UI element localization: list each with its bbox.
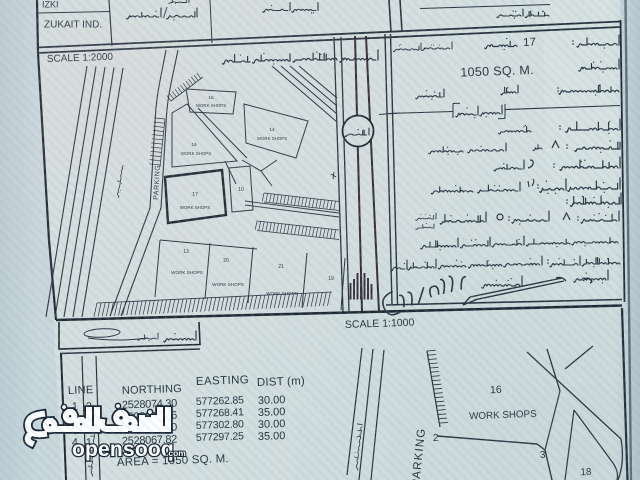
svg-text:35.00: 35.00 [258,430,286,443]
svg-text:17: 17 [192,192,198,198]
svg-text:WORK SHOPS: WORK SHOPS [196,103,226,108]
svg-text:15: 15 [208,95,214,101]
svg-text:SCALE 1:1000: SCALE 1:1000 [345,317,415,331]
svg-text:14: 14 [269,127,275,133]
svg-text:WORK SHOPS: WORK SHOPS [257,136,287,141]
svg-text:WORK SHOPS: WORK SHOPS [212,282,244,287]
svg-text:SCALE 1:2000: SCALE 1:2000 [47,52,114,65]
svg-text:16: 16 [490,384,502,396]
svg-text:18: 18 [580,467,592,478]
svg-text:19: 19 [328,276,334,282]
svg-text:opensooq: opensooq [72,438,174,461]
svg-text:20: 20 [223,258,229,264]
svg-text:13: 13 [183,249,189,255]
svg-text:21: 21 [278,264,284,270]
svg-text:EASTING: EASTING [196,374,250,388]
svg-text:NORTHING: NORTHING [122,383,182,397]
svg-text:IZKI: IZKI [42,0,59,10]
svg-text:30.00: 30.00 [258,394,286,407]
svg-text:DIST (m): DIST (m) [257,375,305,389]
svg-text:10: 10 [238,187,244,193]
svg-text:1050 SQ. M.: 1050 SQ. M. [460,63,534,80]
svg-text:WORK SHOPS: WORK SHOPS [181,151,211,156]
svg-text:30.00: 30.00 [258,418,286,431]
svg-text:17: 17 [523,37,536,49]
svg-text:LINE: LINE [68,384,94,397]
svg-text:2: 2 [433,433,439,444]
svg-text:577297.25: 577297.25 [196,430,245,444]
svg-text:35.00: 35.00 [258,406,286,419]
svg-text:.com: .com [166,448,186,458]
svg-text:WORK SHOPS: WORK SHOPS [171,270,203,275]
svg-text:ZUKAIT IND.: ZUKAIT IND. [44,20,102,31]
svg-text:WORK SHOPS: WORK SHOPS [180,205,210,210]
svg-text:16: 16 [191,142,197,148]
